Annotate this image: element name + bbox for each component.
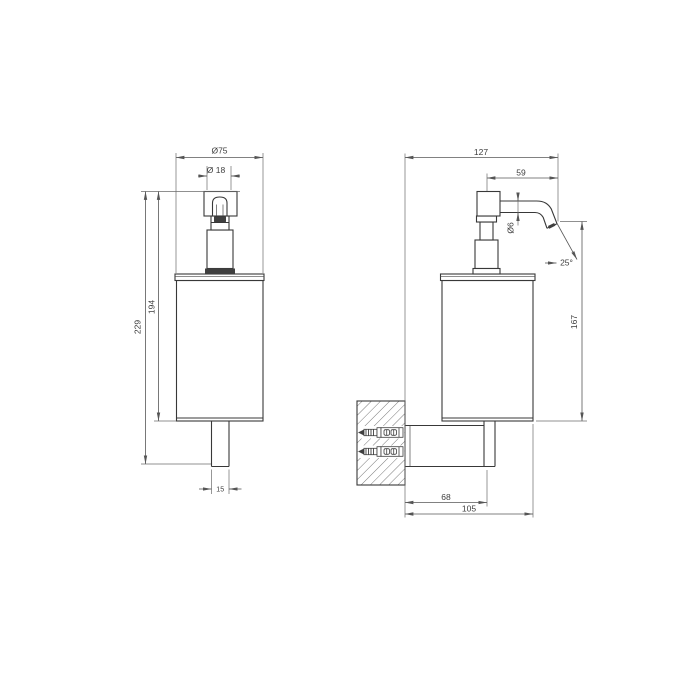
pump-outlet-dark-front	[214, 217, 226, 223]
dim-label-spout-projection: 59	[516, 168, 526, 178]
lid-front	[175, 274, 264, 281]
dim-label-overall-height: 229	[133, 320, 143, 334]
wall-section	[357, 401, 405, 485]
pump-head-side	[477, 192, 500, 217]
front-view: Ø75 Ø 18 229 194 15	[133, 146, 265, 495]
dispenser-body-side	[441, 274, 536, 421]
pump-collar-side	[477, 216, 497, 222]
pump-flare-side	[473, 269, 500, 275]
pump-base-side	[475, 240, 498, 269]
lid-side	[441, 274, 536, 281]
dim-label-pump-diameter: Ø 18	[207, 165, 226, 175]
dispenser-body-front	[175, 274, 264, 467]
dim-label-stem-width: 15	[216, 487, 224, 494]
wall-hatched-block	[357, 401, 405, 485]
dim-label-wall-to-bracket: 68	[441, 492, 451, 502]
angle-leader-line	[557, 223, 577, 260]
wall-anchor-screw-lower	[358, 447, 403, 457]
dim-label-wall-to-front: 105	[462, 504, 476, 514]
technical-drawing: Ø75 Ø 18 229 194 15	[0, 0, 700, 700]
drawing-svg: Ø75 Ø 18 229 194 15	[0, 0, 700, 700]
mounting-bracket	[405, 421, 495, 467]
dim-label-body-height: 194	[147, 300, 157, 314]
dim-label-spout-diameter: Ø6	[506, 222, 516, 234]
side-view: 127 59 Ø6 25° 167 68 105	[357, 147, 587, 518]
pump-front	[204, 192, 237, 275]
dim-label-overall-depth: 127	[474, 147, 488, 157]
wall-anchor-screw-upper	[358, 428, 403, 438]
pump-head-front	[204, 192, 237, 217]
bottle-body-front	[177, 281, 264, 422]
pump-stem-side	[480, 222, 493, 240]
dim-label-body-diameter: Ø75	[211, 146, 227, 156]
dim-label-spout-angle: 25°	[560, 258, 573, 268]
dim-label-outlet-height: 167	[569, 315, 579, 329]
bottle-body-side	[442, 281, 533, 422]
spout-outlet-opening	[549, 224, 555, 227]
pump-base-front	[207, 230, 233, 269]
pump-flare-front	[205, 269, 235, 275]
